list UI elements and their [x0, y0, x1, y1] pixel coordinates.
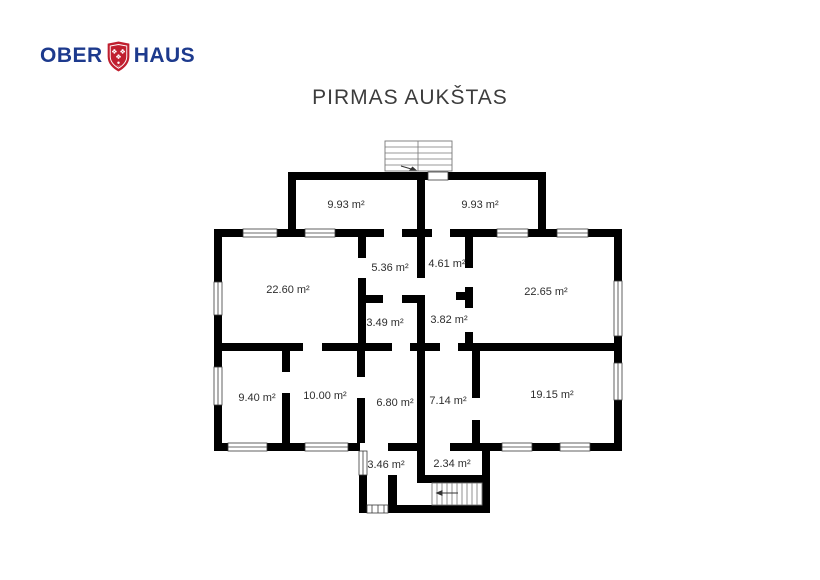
floor-plan: 9.93 m² 9.93 m² 22.60 m² 5.36 m² 4.61 m²… — [0, 0, 820, 580]
room-label-22-60: 22.60 m² — [266, 284, 310, 296]
top-staircase-icon — [385, 141, 452, 171]
room-label-annex-right: 9.93 m² — [461, 199, 499, 211]
room-label-annex-left: 9.93 m² — [327, 199, 365, 211]
room-label-5-36: 5.36 m² — [371, 262, 409, 274]
room-label-6-80: 6.80 m² — [376, 397, 414, 409]
room-label-3-46: 3.46 m² — [367, 459, 405, 471]
room-label-10-00: 10.00 m² — [303, 390, 347, 402]
bottom-staircase-icon — [432, 483, 482, 505]
room-label-22-65: 22.65 m² — [524, 286, 568, 298]
room-label-4-61: 4.61 m² — [428, 258, 466, 270]
entrance-steps-icon — [367, 505, 388, 513]
room-label-7-14: 7.14 m² — [429, 395, 467, 407]
room-label-3-82: 3.82 m² — [430, 314, 468, 326]
walls — [214, 172, 622, 513]
room-label-3-49: 3.49 m² — [366, 317, 404, 329]
room-label-2-34: 2.34 m² — [433, 458, 471, 470]
room-label-9-40: 9.40 m² — [238, 392, 276, 404]
room-label-19-15: 19.15 m² — [530, 389, 574, 401]
